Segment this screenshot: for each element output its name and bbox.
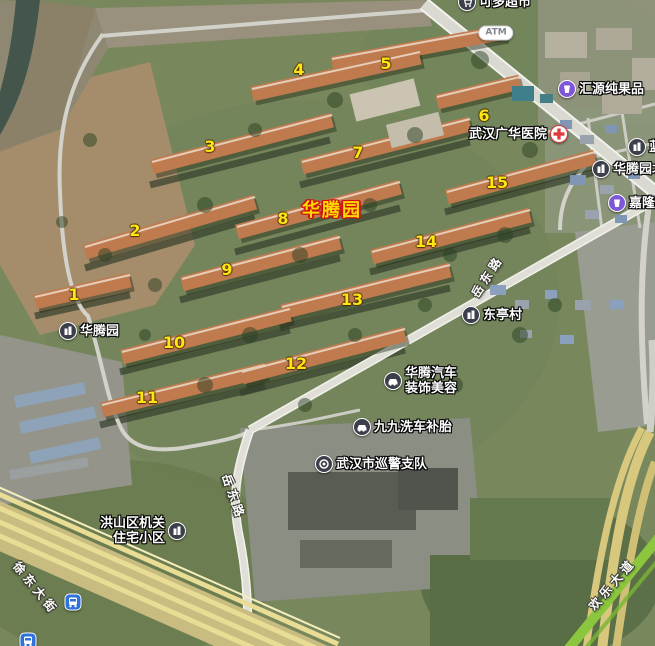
poi-label-line: 嘉隆华 [629, 196, 655, 211]
poi-hongshan-residential[interactable]: 洪山区机关住宅小区 [100, 516, 186, 546]
building-number-1[interactable]: 1 [68, 287, 79, 303]
building-number-14[interactable]: 14 [415, 234, 437, 250]
building-number-15[interactable]: 15 [486, 175, 508, 191]
poi-label-line: 华腾园北 [613, 162, 655, 177]
poi-label-line: 武汉广华医院 [469, 127, 547, 142]
poi-label: 嘉隆华 [629, 196, 655, 211]
poi-label-line: 华腾汽车 [405, 366, 457, 381]
poi-label-line: 九九洗车补胎 [374, 420, 452, 435]
car-icon [384, 372, 402, 390]
police-icon [315, 455, 333, 473]
juice-icon [608, 194, 626, 212]
building-number-12[interactable]: 12 [285, 356, 307, 372]
poi-label: 洪山区机关住宅小区 [100, 516, 165, 546]
road-label-2: 徐东大街 [9, 558, 62, 618]
building-number-4[interactable]: 4 [293, 62, 304, 78]
poi-label: 九九洗车补胎 [374, 420, 452, 435]
road-label-0: 岳东路 [467, 251, 507, 301]
car-icon [353, 418, 371, 436]
poi-label: 武汉市巡警支队 [336, 457, 427, 472]
poi-huiyuan-juice[interactable]: 汇源纯果品 [558, 80, 644, 98]
road-label-1: 岳东路 [218, 472, 250, 523]
poi-label-line: 武汉市巡警支队 [336, 457, 427, 472]
hospital-icon [550, 125, 568, 143]
poi-label-line: 东亭村 [483, 308, 522, 323]
poi-label: 汇源纯果品 [579, 82, 644, 97]
poi-jialonghua[interactable]: 嘉隆华 [608, 194, 655, 212]
poi-huateng-auto-decor[interactable]: 华腾汽车装饰美容 [384, 366, 457, 396]
poi-corner-station[interactable] [19, 632, 37, 646]
poi-label: 武汉广华医院 [469, 127, 547, 142]
poi-label: 华腾汽车装饰美容 [405, 366, 457, 396]
satellite-map[interactable]: 华腾园 123456789101112131415可多超市ATM汇源纯果品武汉广… [0, 0, 655, 646]
poi-huatengyuan-north[interactable]: 华腾园北 [592, 160, 655, 178]
building-icon [462, 306, 480, 324]
poi-patrol-police[interactable]: 武汉市巡警支队 [315, 455, 427, 473]
poi-label: 蓝 [649, 140, 655, 155]
building-number-2[interactable]: 2 [129, 223, 140, 239]
building-number-6[interactable]: 6 [478, 108, 489, 124]
area-label-huatengyuan[interactable]: 华腾园 [302, 196, 362, 222]
poi-atm[interactable]: ATM [478, 26, 513, 41]
poi-label-line: 住宅小区 [113, 531, 165, 546]
poi-wuhan-guanghua-hospital[interactable]: 武汉广华医院 [469, 125, 568, 143]
building-number-13[interactable]: 13 [341, 292, 363, 308]
building-icon [592, 160, 610, 178]
poi-label-line: 华腾园 [80, 324, 119, 339]
building-number-11[interactable]: 11 [136, 390, 158, 406]
building-number-5[interactable]: 5 [380, 56, 391, 72]
poi-huatengyuan-stop[interactable]: 华腾园 [59, 322, 119, 340]
poi-label: 华腾园北 [613, 162, 655, 177]
juice-icon [558, 80, 576, 98]
poi-bus-stop-xudong[interactable] [64, 593, 82, 611]
poi-label-line: 装饰美容 [405, 381, 457, 396]
cart-icon [458, 0, 476, 11]
poi-label: 可多超市 [479, 0, 531, 10]
map-label-overlay: 华腾园 123456789101112131415可多超市ATM汇源纯果品武汉广… [0, 0, 655, 646]
building-icon [59, 322, 77, 340]
building-icon [168, 522, 186, 540]
building-number-8[interactable]: 8 [277, 211, 288, 227]
poi-label: 华腾园 [80, 324, 119, 339]
building-number-7[interactable]: 7 [352, 145, 363, 161]
poi-lan-truncated[interactable]: 蓝 [628, 138, 655, 156]
poi-label-line: 汇源纯果品 [579, 82, 644, 97]
poi-label-line: 洪山区机关 [100, 516, 165, 531]
building-number-3[interactable]: 3 [204, 139, 215, 155]
building-number-9[interactable]: 9 [221, 262, 232, 278]
bus-icon [64, 593, 82, 611]
poi-keduo-supermarket[interactable]: 可多超市 [458, 0, 531, 11]
building-icon [628, 138, 646, 156]
poi-dongtingcun[interactable]: 东亭村 [462, 306, 522, 324]
building-number-10[interactable]: 10 [163, 335, 185, 351]
bus-icon [19, 632, 37, 646]
poi-label-line: 蓝 [649, 140, 655, 155]
poi-jiujiu-carwash[interactable]: 九九洗车补胎 [353, 418, 452, 436]
poi-label-line: 可多超市 [479, 0, 531, 10]
poi-label: 东亭村 [483, 308, 522, 323]
road-label-3: 欢乐大道 [585, 554, 640, 613]
